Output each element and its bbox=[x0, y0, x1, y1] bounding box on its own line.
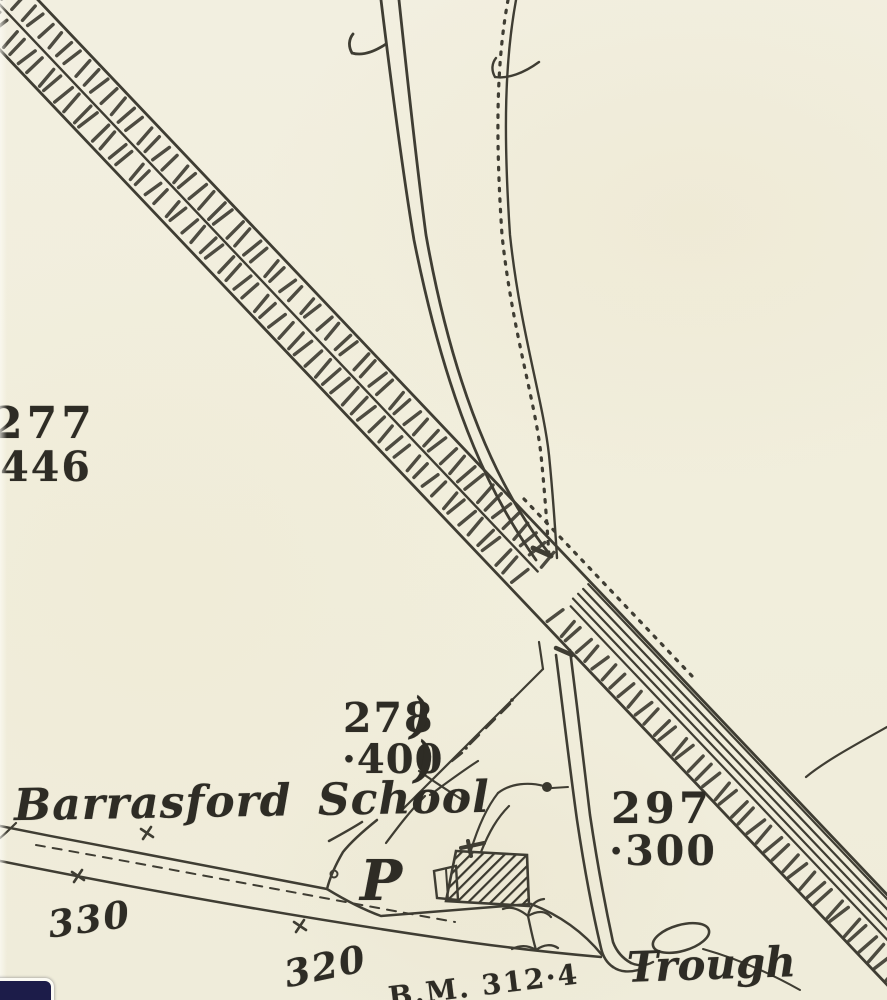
railside-footpath-dots bbox=[524, 499, 693, 677]
scan-edge bbox=[0, 0, 7, 1000]
label-parcel-297-number: 297 bbox=[611, 788, 713, 831]
railway-lower-fence bbox=[0, 0, 887, 1000]
label-trough: Trough bbox=[626, 941, 796, 989]
road-from-north bbox=[349, 0, 551, 560]
label-elevation-330: 330 bbox=[46, 895, 134, 943]
map-viewport[interactable]: 277 ·446 278 ) ·400 ) Barrasford School … bbox=[0, 0, 887, 1000]
label-parcel-297-area: ·300 bbox=[609, 831, 717, 872]
label-school-name: Barrasford School bbox=[14, 776, 491, 828]
footpath bbox=[492, 0, 557, 558]
label-parcel-277-area: ·446 bbox=[0, 447, 92, 488]
railway-band bbox=[0, 0, 887, 1000]
corner-ui-button[interactable] bbox=[0, 978, 54, 1000]
label-parcel-277-number: 277 bbox=[0, 402, 96, 446]
map-linework bbox=[0, 0, 887, 1000]
label-p-symbol: P bbox=[360, 853, 402, 909]
